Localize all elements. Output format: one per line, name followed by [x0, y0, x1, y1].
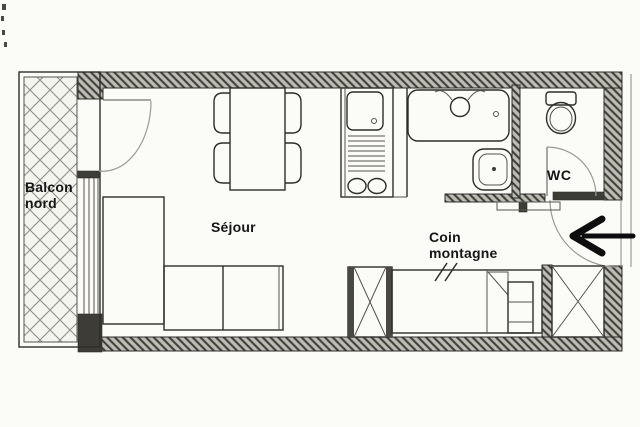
scan-artifacts [1, 4, 7, 47]
entrance-arrow-icon [573, 219, 633, 253]
dining-table [230, 88, 285, 190]
living-room-label: Séjour [211, 219, 256, 235]
mountain-corner-label-line1: Coin [429, 229, 498, 245]
mountain-corner [348, 266, 604, 337]
balcony-door-sill [75, 171, 100, 178]
doors [99, 100, 621, 267]
stove-burner-right [368, 179, 386, 194]
living-room-furniture [103, 197, 283, 330]
kitchen-sink [347, 92, 383, 130]
chair-bottom-left [214, 143, 230, 183]
wall-bathroom-bottom [445, 194, 545, 202]
wall-top [78, 72, 622, 99]
mountain-corner-label-line2: montagne [429, 245, 498, 261]
chair-top-left [214, 93, 230, 133]
label-pointer-slashes [435, 263, 457, 281]
mountain-corner-label: Coin montagne [429, 229, 498, 261]
nook-divider-wall [542, 265, 552, 337]
faucet-handle-right [468, 91, 485, 100]
wc-label: WC [547, 167, 572, 183]
toilet-bowl-inner [550, 107, 572, 131]
dining-set [214, 88, 301, 190]
kitchenette [341, 88, 407, 197]
washbasin-tap [492, 167, 496, 171]
chair-bottom-right [285, 143, 301, 183]
floor-plan-drawing [0, 0, 640, 427]
kitchen-unit [341, 88, 393, 197]
floor-plan: Balcon nord Séjour Coin montagne WC [0, 0, 640, 427]
balcony-label: Balcon nord [25, 179, 73, 211]
faucet-handle-left [435, 91, 452, 100]
wall-wc-left [512, 85, 520, 198]
sink-drainer-lines [348, 136, 385, 171]
chair-top-right [285, 93, 301, 133]
wall-corner-block [78, 314, 102, 352]
bathroom [408, 90, 512, 190]
balcony-label-line1: Balcon [25, 179, 73, 195]
wall-right-upper [604, 88, 622, 200]
wall-bottom [100, 337, 622, 351]
stove-burner-left [348, 179, 366, 194]
balcony-label-line2: nord [25, 195, 73, 211]
balcony-door-arc [99, 101, 151, 171]
sink-drain [372, 119, 377, 124]
balcony-window [84, 178, 98, 314]
wc-room [546, 92, 576, 134]
bathtub-drain [494, 112, 499, 117]
bed-ladder [508, 282, 533, 333]
sofa-vertical [103, 197, 164, 324]
corner-shelf [488, 272, 508, 295]
bathtub-faucet [451, 98, 470, 117]
